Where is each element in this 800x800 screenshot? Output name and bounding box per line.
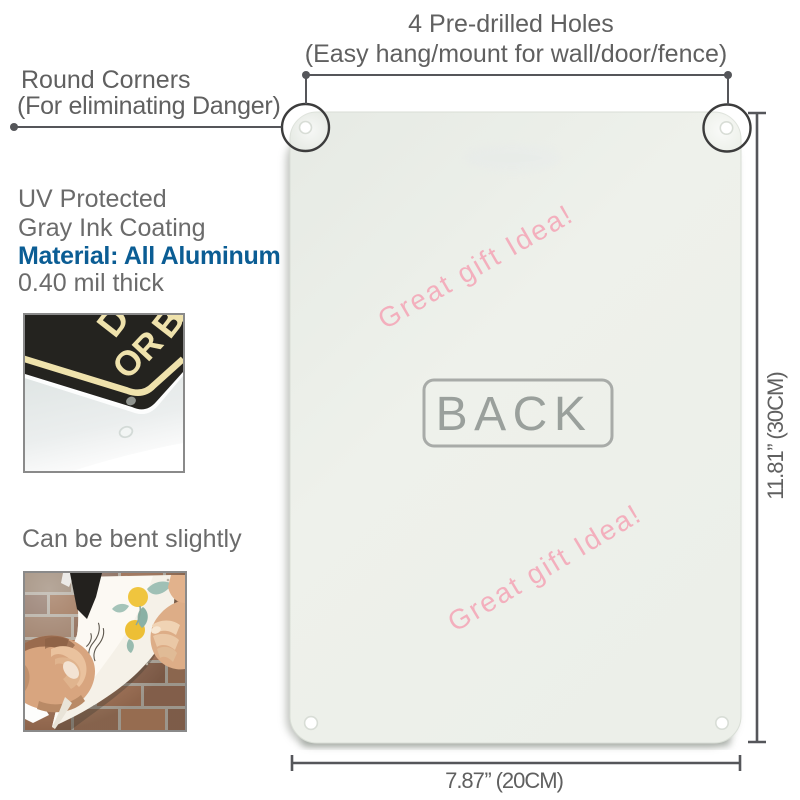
svg-text:(For eliminating Danger): (For eliminating Danger) bbox=[17, 92, 281, 120]
svg-text:(Easy hang/mount for wall/door: (Easy hang/mount for wall/door/fence) bbox=[305, 40, 727, 68]
svg-text:UV Protected: UV Protected bbox=[18, 185, 167, 213]
svg-text:Material: All Aluminum: Material: All Aluminum bbox=[18, 242, 280, 270]
svg-text:0.40 mil thick: 0.40 mil thick bbox=[18, 269, 164, 297]
svg-text:7.87’’ (20CM): 7.87’’ (20CM) bbox=[445, 768, 563, 793]
svg-text:BACK: BACK bbox=[436, 388, 593, 441]
svg-text:11.81’’ (30CM): 11.81’’ (30CM) bbox=[763, 372, 788, 499]
svg-text:Gray Ink Coating: Gray Ink Coating bbox=[18, 214, 206, 242]
svg-text:Can be bent slightly: Can be bent slightly bbox=[22, 525, 242, 553]
svg-text:Round Corners: Round Corners bbox=[21, 66, 191, 94]
svg-text:4 Pre-drilled Holes: 4 Pre-drilled Holes bbox=[408, 10, 614, 38]
